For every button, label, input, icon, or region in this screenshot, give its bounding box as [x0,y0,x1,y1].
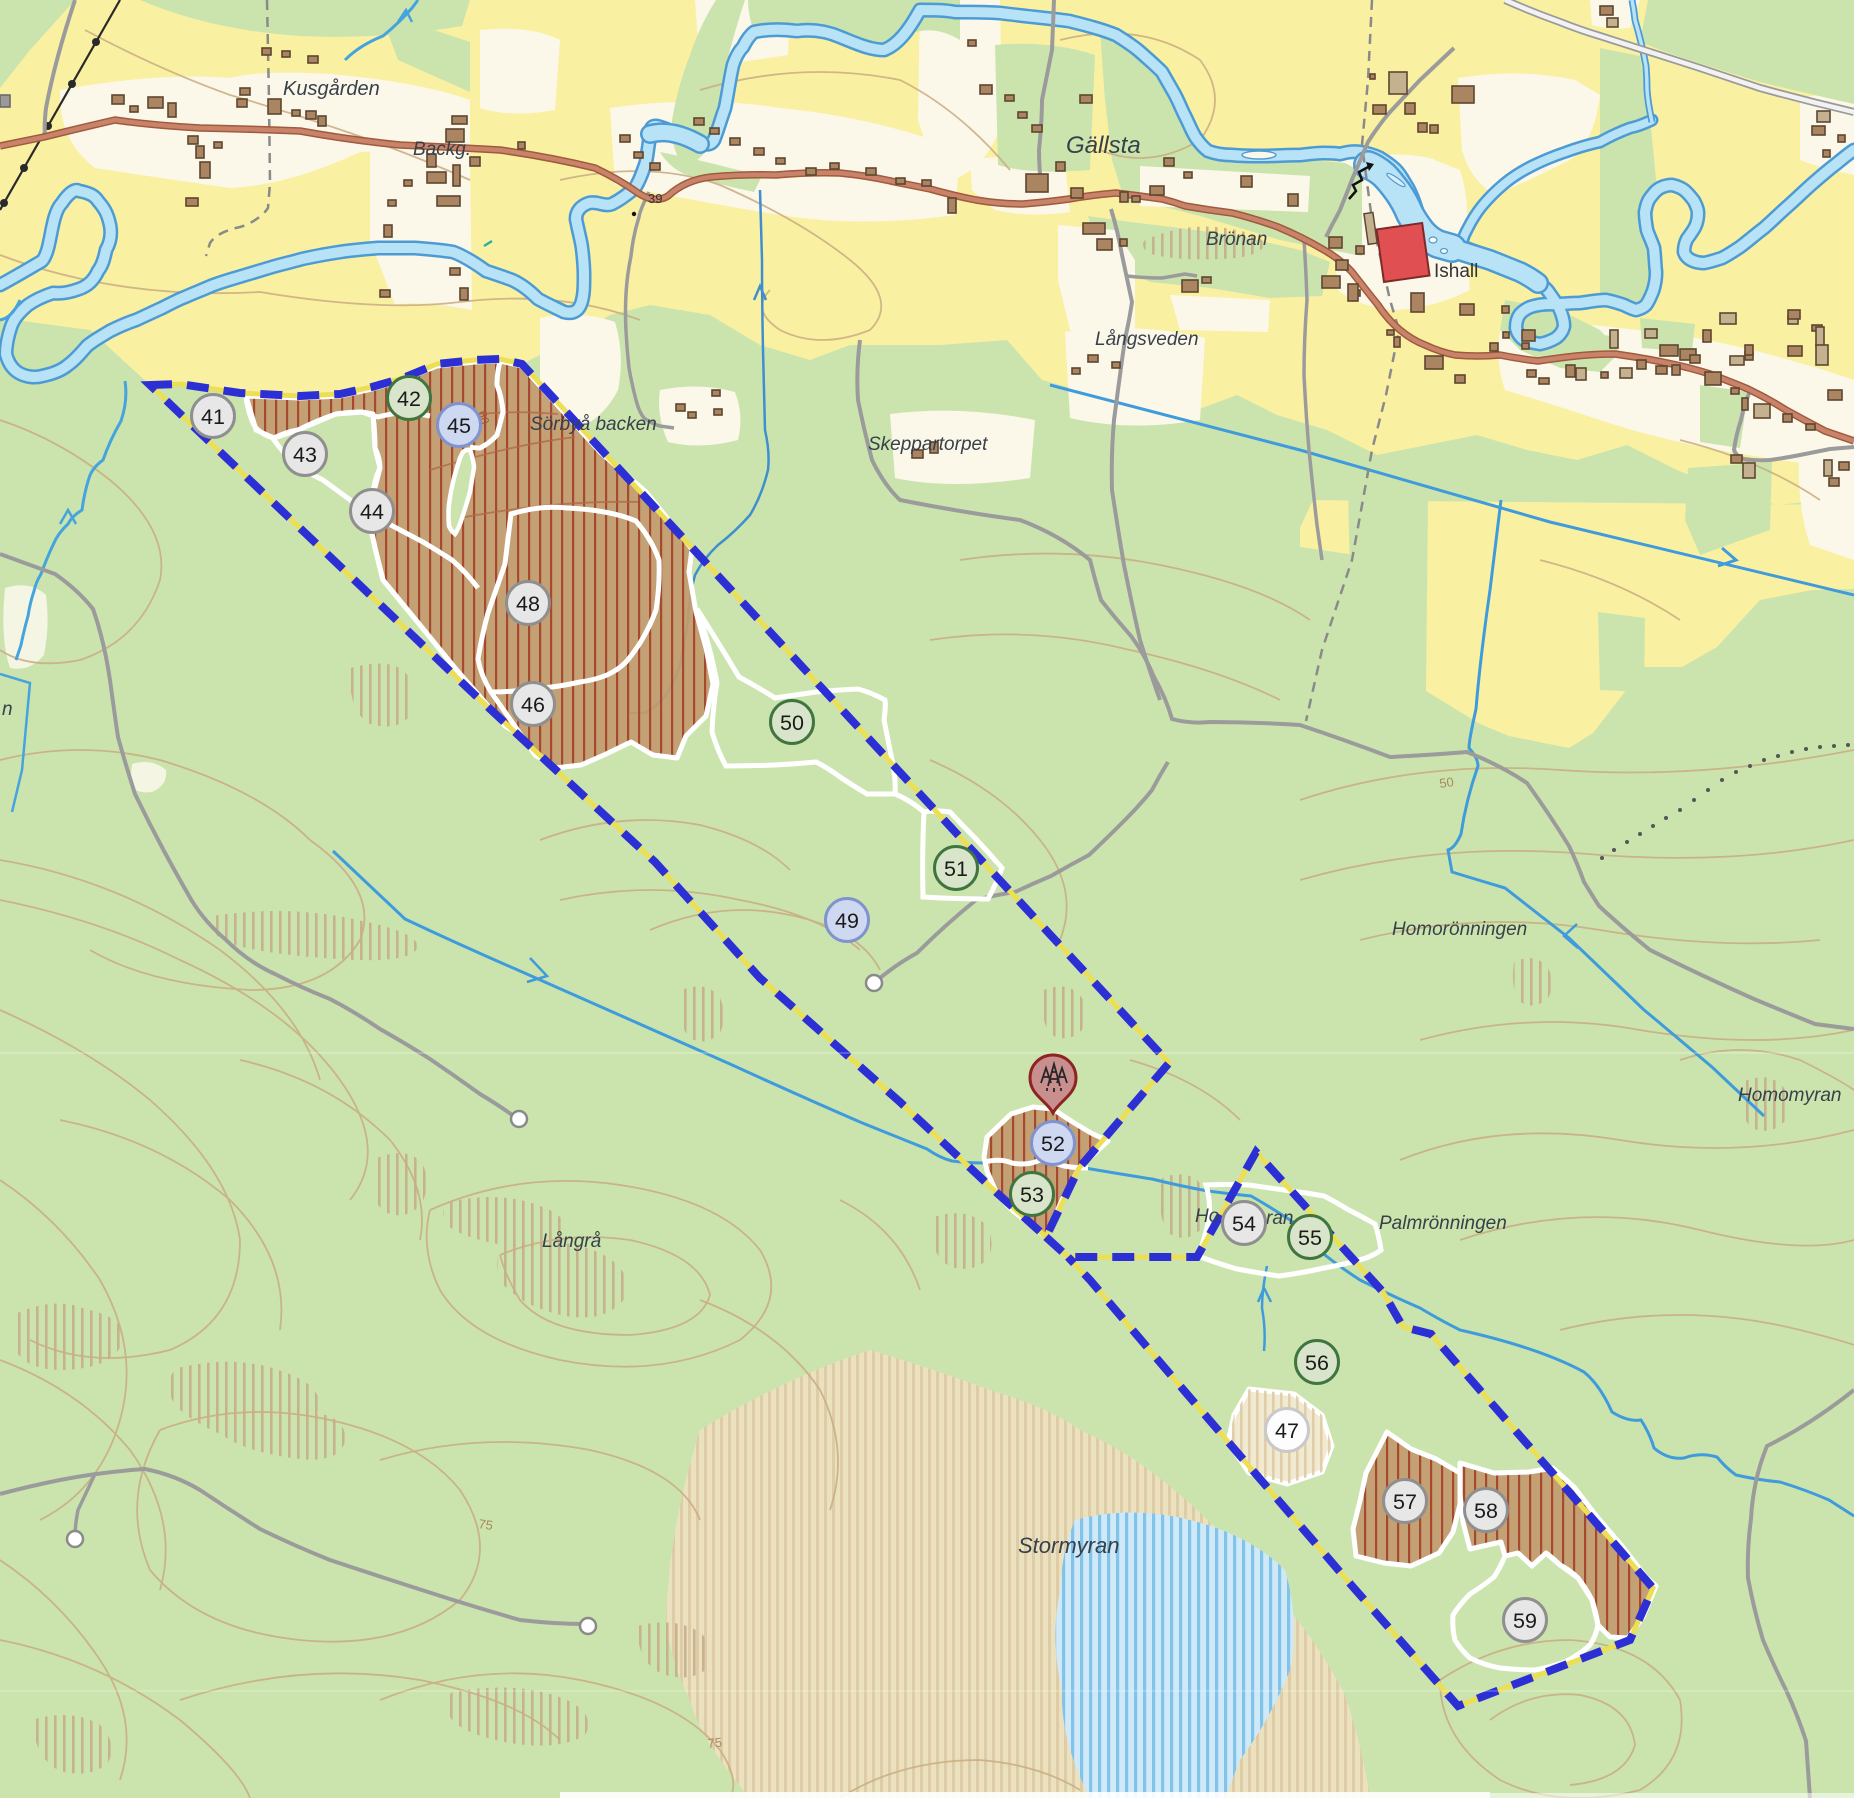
svg-text:48: 48 [516,592,540,616]
svg-text:57: 57 [1393,1490,1417,1514]
svg-text:Ho: Ho [1195,1206,1219,1227]
svg-text:46: 46 [521,693,545,717]
svg-text:75: 75 [478,1516,494,1533]
svg-text:55: 55 [1298,1226,1322,1250]
svg-text:n: n [2,699,13,720]
svg-text:Stormyran: Stormyran [1018,1533,1119,1558]
svg-text:ran: ran [1266,1208,1293,1229]
svg-text:Långrå: Långrå [542,1231,601,1252]
svg-text:Homorönningen: Homorönningen [1392,919,1527,940]
svg-text:49: 49 [835,909,859,933]
svg-text:Gällsta: Gällsta [1066,132,1141,159]
svg-text:44: 44 [360,500,384,524]
svg-text:Skeppartorpet: Skeppartorpet [868,434,988,455]
svg-text:52: 52 [1041,1132,1065,1156]
svg-text:50: 50 [1438,774,1454,791]
svg-text:43: 43 [293,443,317,467]
svg-text:39: 39 [648,191,662,206]
svg-text:Brönan: Brönan [1206,229,1267,250]
svg-text:50: 50 [780,711,804,735]
svg-text:54: 54 [1232,1212,1256,1236]
svg-text:41: 41 [201,405,225,429]
svg-text:75: 75 [707,1735,723,1751]
svg-text:Homomyran: Homomyran [1738,1085,1841,1106]
svg-text:59: 59 [1513,1609,1537,1633]
svg-text:51: 51 [944,857,968,881]
svg-text:Kusgården: Kusgården [283,78,380,100]
svg-text:56: 56 [1305,1351,1329,1375]
svg-text:Palmrönningen: Palmrönningen [1379,1213,1507,1234]
svg-text:Långsveden: Långsveden [1095,329,1199,350]
svg-text:53: 53 [1020,1183,1044,1207]
svg-text:45: 45 [447,414,471,438]
svg-text:Sörbyå backen: Sörbyå backen [530,414,657,435]
svg-text:Backg.: Backg. [413,139,471,160]
svg-text:47: 47 [1275,1419,1299,1443]
svg-text:Ishall: Ishall [1434,261,1478,282]
svg-text:58: 58 [1474,1499,1498,1523]
svg-text:42: 42 [397,387,421,411]
